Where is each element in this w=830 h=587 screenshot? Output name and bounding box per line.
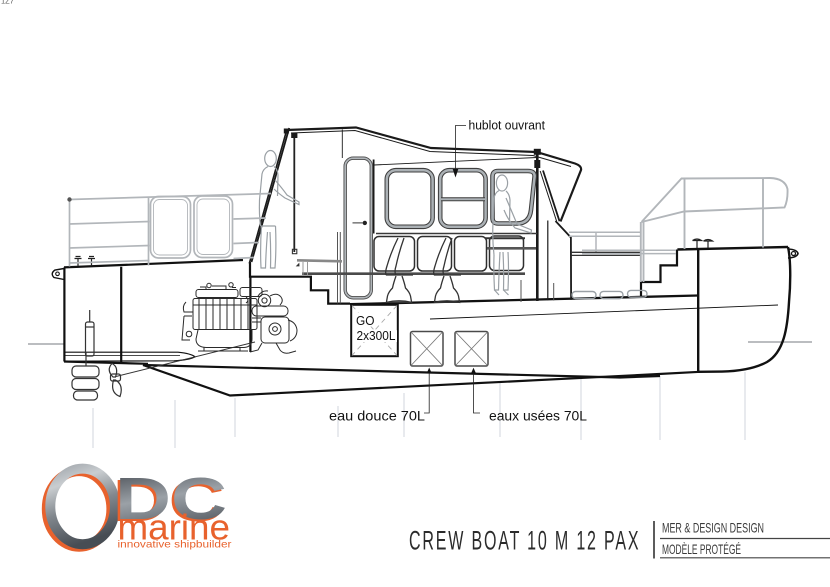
svg-text:2x300L: 2x300L: [357, 328, 396, 343]
svg-text:innovative shipbuilder: innovative shipbuilder: [118, 538, 233, 550]
svg-text:eau douce 70L: eau douce 70L: [329, 407, 425, 423]
svg-text:hublot ouvrant: hublot ouvrant: [469, 117, 546, 132]
svg-text:CREW BOAT 10 M 12 PAX: CREW BOAT 10 M 12 PAX: [409, 525, 640, 555]
svg-text:1Z7: 1Z7: [1, 0, 14, 6]
svg-text:MER & DESIGN DESIGN: MER & DESIGN DESIGN: [662, 520, 764, 536]
svg-text:MODÈLE PROTÉGÉ: MODÈLE PROTÉGÉ: [662, 541, 741, 557]
svg-text:eaux usées 70L: eaux usées 70L: [489, 407, 587, 423]
svg-text:GO: GO: [356, 313, 375, 328]
